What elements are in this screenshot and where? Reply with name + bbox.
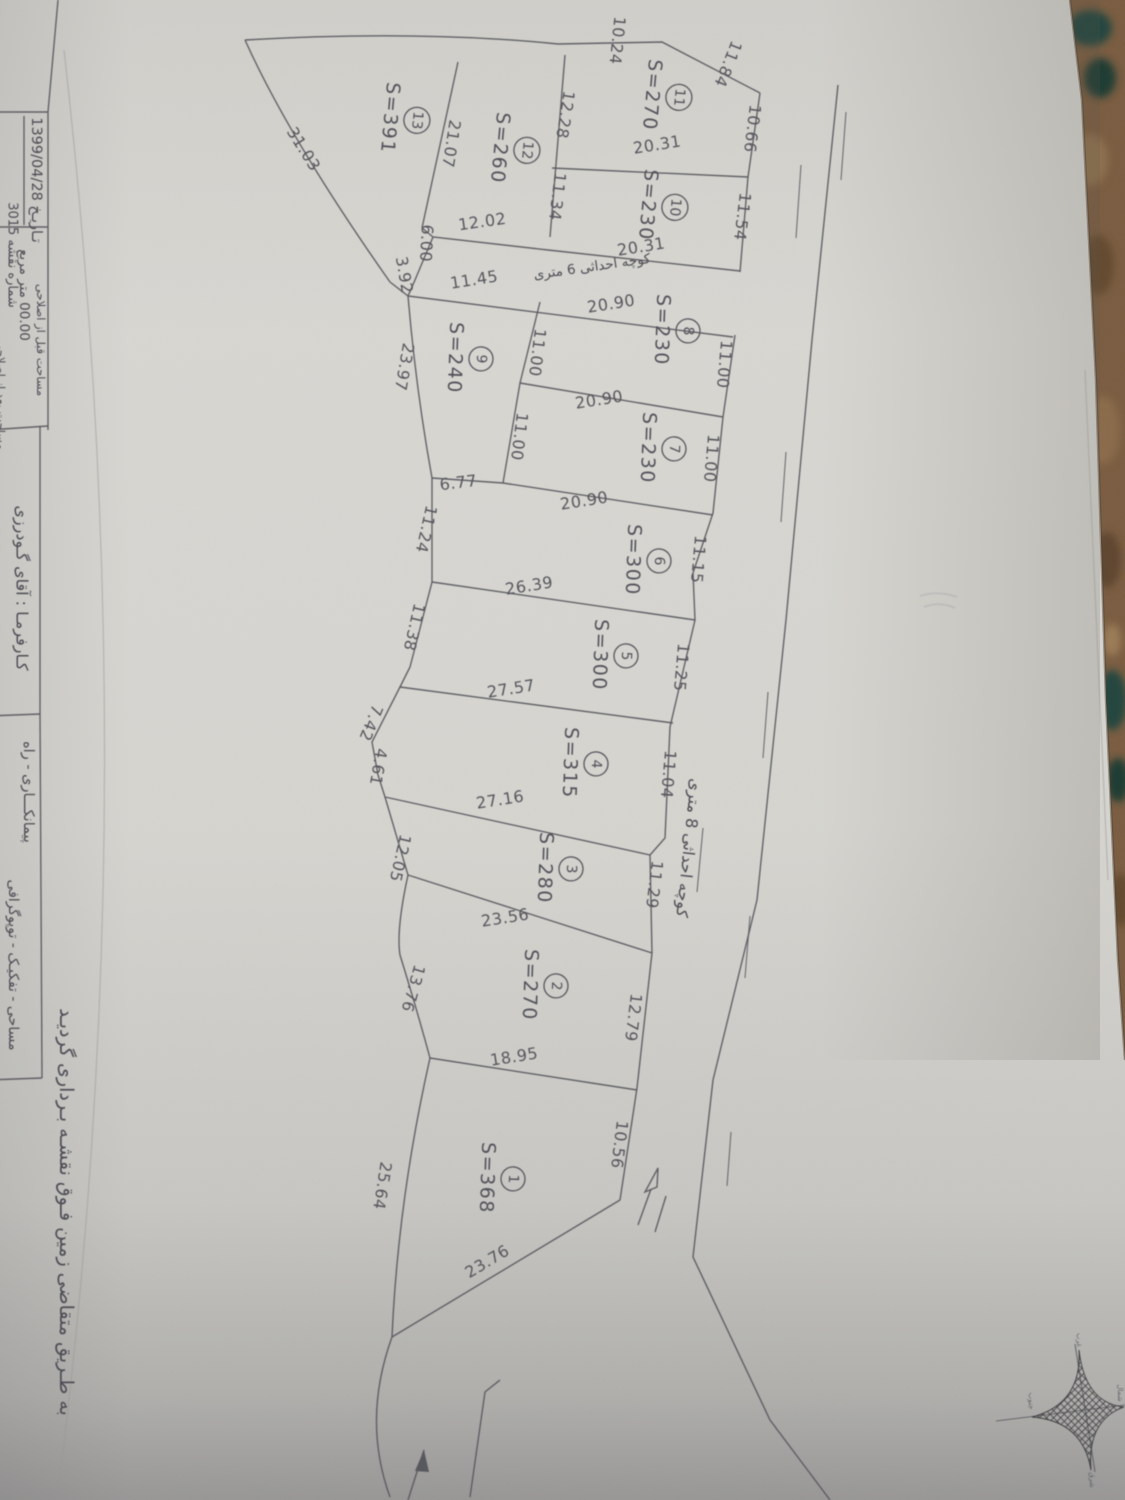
site-plan-canvas: 31.03 10.24 11.84 10.66 11.54 12.28 21.0… <box>0 0 1125 1500</box>
photo-grain-overlay <box>0 0 1125 1500</box>
survey-map-photo: 31.03 10.24 11.84 10.66 11.54 12.28 21.0… <box>0 0 1125 1500</box>
